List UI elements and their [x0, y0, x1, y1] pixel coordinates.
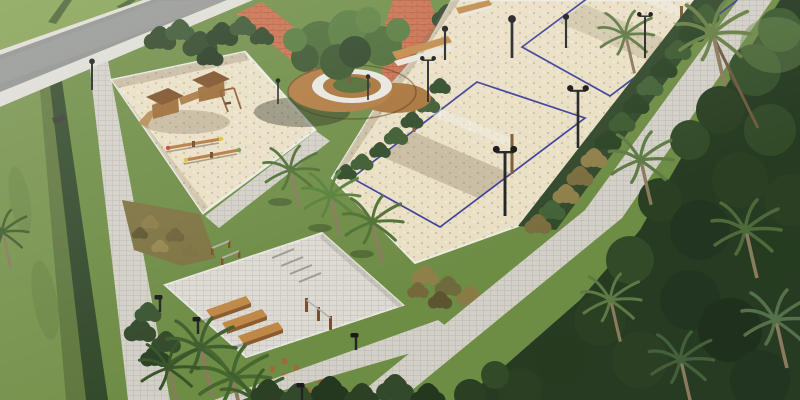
haze-overlay: [0, 0, 800, 400]
park-render: [0, 0, 800, 400]
park-scene: [0, 0, 800, 400]
